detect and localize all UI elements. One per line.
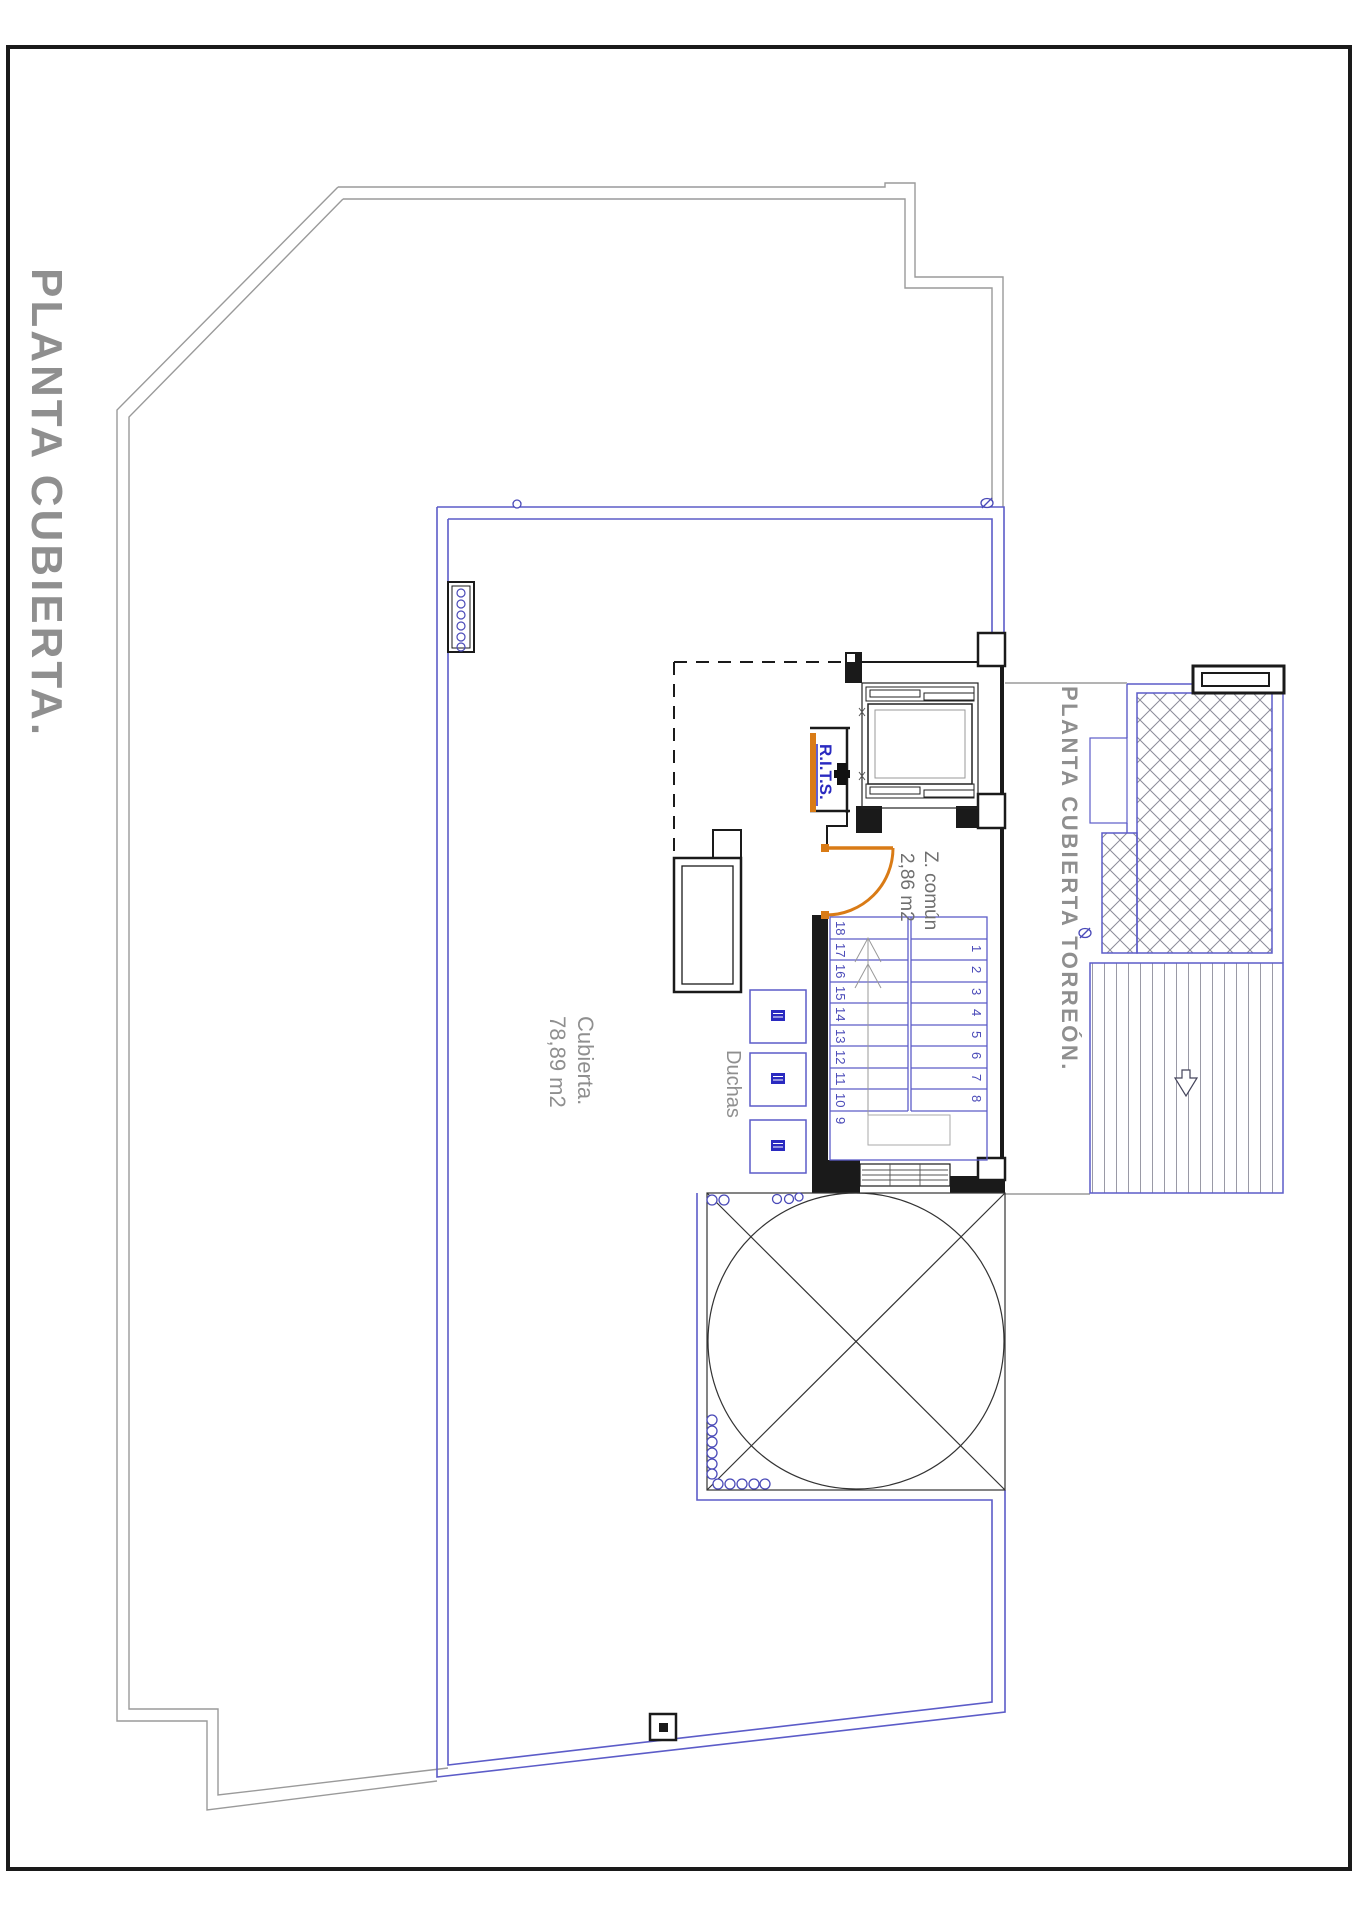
svg-text:18: 18	[833, 921, 848, 935]
svg-text:16: 16	[833, 964, 848, 978]
svg-text:14: 14	[833, 1007, 848, 1021]
rits-label: R.I.T.S.	[816, 744, 835, 800]
showers-label: Duchas	[722, 1050, 744, 1118]
elevator-door-sill	[860, 1164, 950, 1186]
common-zone-label: Z. común	[920, 851, 941, 930]
torreon-title: PLANTA CUBIERTA TORREÓN.	[1057, 686, 1082, 1072]
drawing-sheet: PLANTA CUBIERTA. PLANTA CUBIERTA TORREÓN…	[0, 0, 1357, 1920]
svg-text:13: 13	[833, 1029, 848, 1043]
skylight	[707, 1193, 1005, 1490]
roof-drain-icon	[513, 500, 521, 508]
svg-text:2: 2	[969, 966, 984, 973]
stair-numbers-right: 1 2 3 4 5 6 7 8	[969, 945, 984, 1102]
svg-text:10: 10	[833, 1093, 848, 1107]
roof-drain-icon	[981, 498, 993, 508]
staircase	[830, 917, 987, 1160]
roof-area-label: Cubierta.	[573, 1016, 598, 1105]
svg-text:1: 1	[969, 945, 984, 952]
svg-text:8: 8	[969, 1095, 984, 1102]
building-outline	[117, 183, 1127, 1810]
shower-drain-icon	[771, 1010, 785, 1151]
skylight-vent-circles	[707, 1193, 803, 1489]
door-jamb-wall	[827, 813, 847, 848]
torreon-notch	[1090, 738, 1127, 823]
stair-numbers-left: 18 17 16 15 14 13 12 11 10 9	[833, 921, 848, 1124]
svg-text:5: 5	[969, 1031, 984, 1038]
roof-area-value: 78,89 m2	[545, 1016, 570, 1108]
vent-grille	[448, 582, 474, 652]
stair-direction-arrow	[855, 938, 950, 1145]
torreon-roof	[1090, 666, 1284, 1193]
chimney-shaft	[674, 830, 741, 992]
svg-text:17: 17	[833, 943, 848, 957]
shower-cabins	[750, 990, 806, 1173]
floor-plan-canvas: PLANTA CUBIERTA. PLANTA CUBIERTA TORREÓN…	[0, 0, 1357, 1920]
antenna-icon	[834, 770, 850, 778]
svg-text:4: 4	[969, 1009, 984, 1016]
svg-text:7: 7	[969, 1074, 984, 1081]
svg-text:3: 3	[969, 988, 984, 995]
torreon-chimney	[1193, 666, 1284, 693]
torreon-hatched-roof	[1137, 693, 1272, 953]
torreon-hatched-roof	[1102, 833, 1137, 953]
wall-notch	[847, 654, 855, 662]
common-zone-value: 2,86 m2	[896, 853, 917, 922]
rits-orange-wall	[810, 733, 816, 812]
svg-text:11: 11	[833, 1072, 848, 1086]
sheet-title: PLANTA CUBIERTA.	[22, 268, 71, 738]
door-swing	[821, 844, 893, 919]
svg-text:6: 6	[969, 1052, 984, 1059]
roof-drain-box	[650, 1714, 676, 1740]
svg-text:9: 9	[833, 1117, 848, 1124]
svg-text:15: 15	[833, 986, 848, 1000]
elevator	[859, 683, 978, 808]
svg-text:12: 12	[833, 1050, 848, 1064]
